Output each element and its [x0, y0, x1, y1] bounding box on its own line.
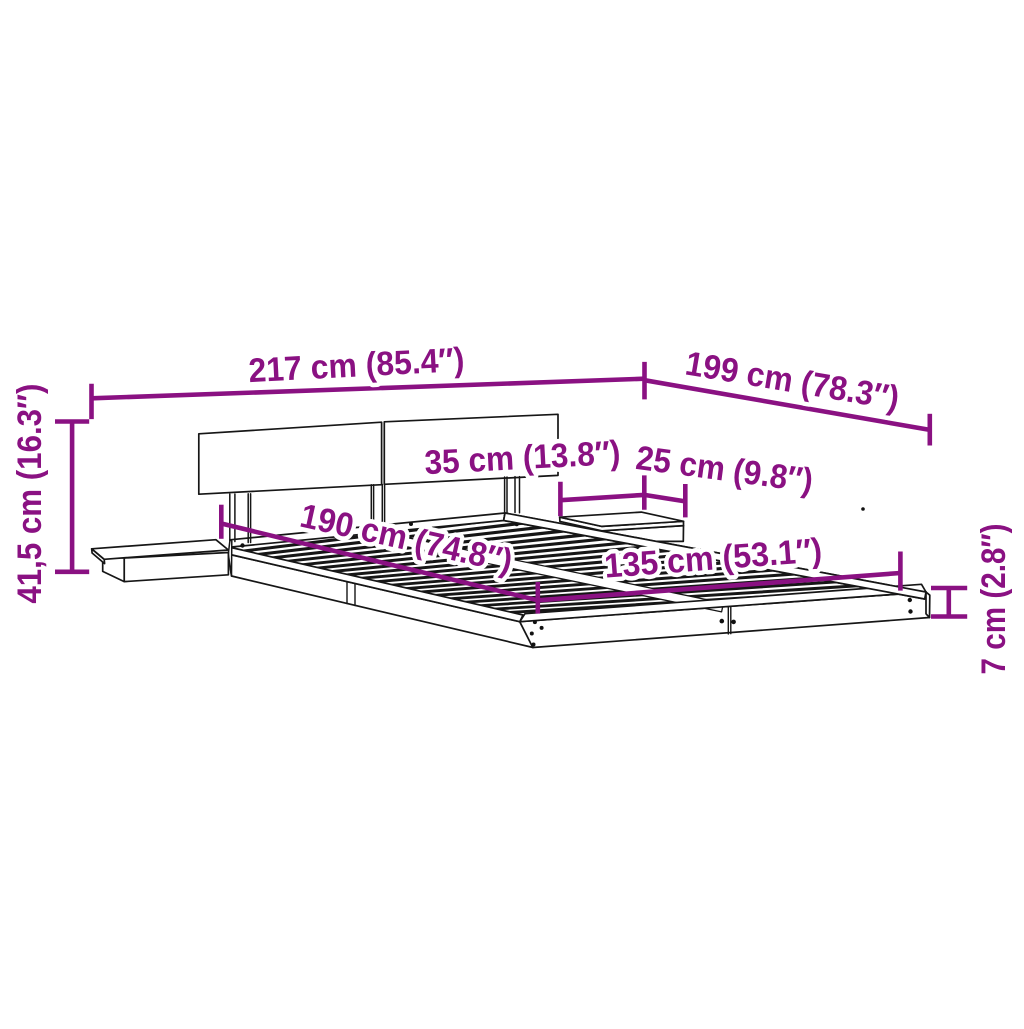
svg-text:7 cm (2.8″): 7 cm (2.8″) [975, 524, 1013, 675]
svg-text:41,5 cm (16.3″): 41,5 cm (16.3″) [11, 384, 49, 604]
